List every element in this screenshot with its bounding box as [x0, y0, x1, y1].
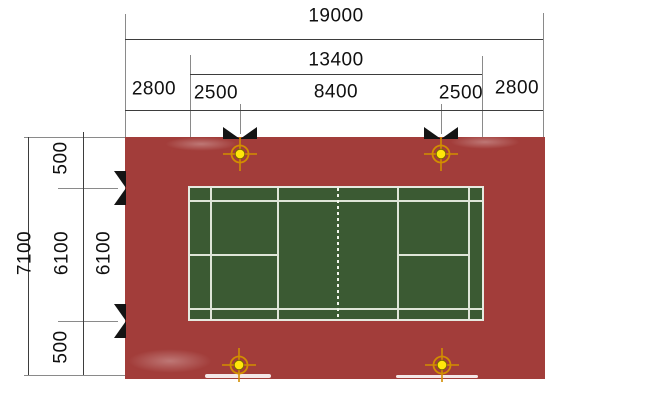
- extension-line: [190, 55, 191, 137]
- dim-label-overall-width: 19000: [308, 7, 363, 26]
- sideline-bottom-inner: [190, 308, 482, 310]
- sideline-top-inner: [190, 200, 482, 202]
- center-service-line-right: [397, 254, 470, 256]
- net-center-line-dashed: [337, 188, 339, 319]
- dimension-line-court-length: [190, 74, 482, 75]
- dimension-line-top-chain: [125, 110, 543, 111]
- paint-blotch: [450, 135, 520, 149]
- extension-line: [58, 188, 118, 189]
- extension-line: [125, 14, 126, 137]
- dim-label-margin-top: 500: [52, 141, 71, 174]
- dim-label-court-width-inner: 6100: [95, 231, 114, 275]
- dim-label-overall-height: 7100: [16, 231, 35, 275]
- dimension-line-left-chain: [83, 132, 84, 375]
- dim-label-post-spacing: 8400: [314, 83, 358, 102]
- light-post-icon-top-right: [423, 136, 459, 172]
- extension-line: [24, 137, 126, 138]
- dim-label-post-offset-left: 2500: [194, 84, 238, 103]
- dim-label-court-width: 6100: [53, 231, 72, 275]
- paint-blotch: [128, 349, 212, 373]
- dim-label-margin-bottom: 500: [52, 330, 71, 363]
- badminton-court-plan: 19000 13400 2800 2500 8400 2500 2800 710…: [0, 0, 650, 418]
- badminton-court: [188, 186, 484, 321]
- light-post-icon-top-left: [222, 136, 258, 172]
- dimension-line-overall-width: [125, 39, 543, 40]
- light-post-icon-bottom-right: [424, 347, 460, 383]
- bowtie-marker-left-upper: [114, 171, 126, 205]
- dim-label-margin-right: 2800: [495, 79, 539, 98]
- center-service-line-left: [190, 254, 279, 256]
- dim-label-post-offset-right: 2500: [439, 84, 483, 103]
- bowtie-marker-left-lower: [114, 304, 126, 338]
- extension-line: [24, 375, 126, 376]
- extension-line: [543, 13, 544, 137]
- extension-line: [58, 321, 118, 322]
- light-post-icon-bottom-left: [221, 347, 257, 383]
- dim-label-court-length: 13400: [308, 51, 363, 70]
- dim-label-margin-left: 2800: [132, 80, 176, 99]
